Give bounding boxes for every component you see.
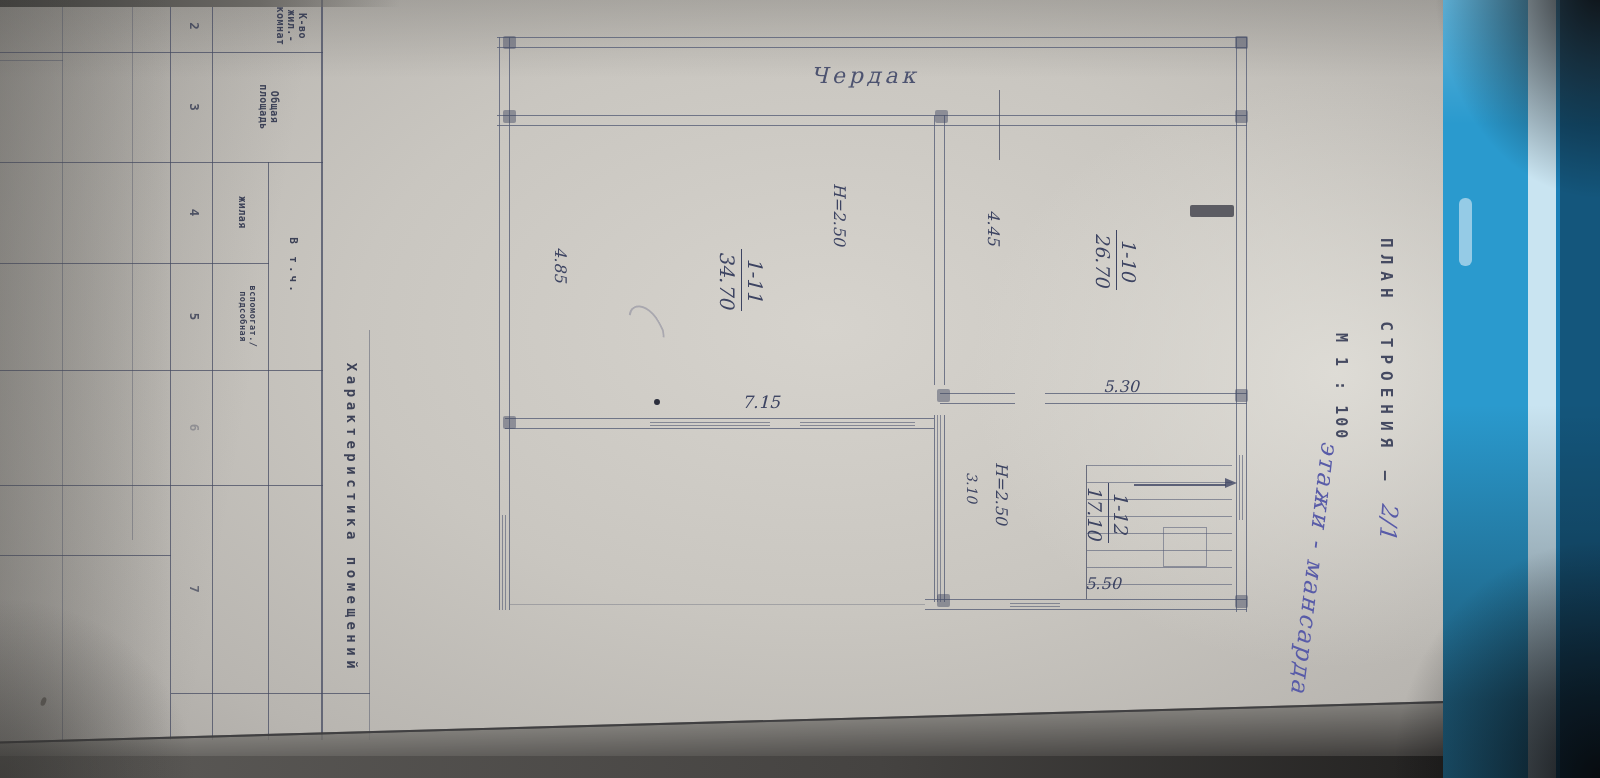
wall-junction-mark — [937, 594, 950, 607]
dimension-4-85: 4.85 — [551, 247, 570, 283]
wall-junction-mark — [503, 36, 516, 49]
table-col-header-total-area: Общая площадь — [258, 52, 280, 162]
wall-junction-mark — [937, 389, 950, 402]
table-title: Характеристика помещений — [344, 318, 360, 718]
wall-outer-right-upper-a — [1060, 599, 1247, 610]
wall-room11-right-b — [770, 418, 800, 429]
table-column-number: 3 — [187, 52, 202, 162]
window-symbol-right-upper — [1010, 599, 1060, 610]
staircase-landing-rect — [1163, 527, 1207, 567]
window-symbol-top — [1236, 455, 1247, 520]
pencil-dash-mark — [1190, 205, 1234, 217]
table-grid-line — [268, 162, 269, 740]
room-label-1-11: 1-11 34.70 — [715, 228, 767, 332]
table-column-number: 6 — [187, 370, 202, 485]
window-symbol-bottom — [499, 515, 510, 610]
room-number: 1-12 — [1108, 483, 1132, 544]
staircase-up-arrow-icon — [1225, 478, 1237, 488]
photo-of-floor-plan-document: ПЛАН СТРОЕНИЯ — 2/1 М 1 : 100 этажи - ма… — [0, 0, 1600, 778]
wall-outer-bottom-a — [499, 37, 510, 515]
right-edge-shadow — [1560, 0, 1600, 778]
wall-junction-mark — [1235, 36, 1248, 49]
room-number: 1-11 — [741, 249, 767, 312]
wall-junction-mark — [935, 110, 948, 123]
attic-label: Чердак — [790, 57, 940, 93]
bottom-left-vignette — [0, 470, 240, 778]
pencil-squiggle-mark — [622, 299, 669, 353]
wall-junction-mark — [1235, 595, 1248, 608]
wall-room10-room12-b — [940, 393, 1015, 404]
staircase-direction-line — [1134, 484, 1226, 486]
attic-partition-tick — [999, 90, 1000, 160]
wall-junction-mark — [1235, 389, 1248, 402]
table-column-number: 2 — [187, 0, 202, 52]
wall-room11-right-c — [505, 418, 650, 429]
wall-veranda-right-faint — [510, 604, 925, 605]
wall-junction-mark — [503, 110, 516, 123]
wall-outer-left — [497, 37, 1247, 48]
table-col-header-auxiliary: вспомогат./ подсобная — [238, 263, 258, 370]
wall-attic-separator — [497, 115, 1247, 126]
table-col-header-living: жилая — [237, 162, 248, 263]
room-number: 1-10 — [1116, 230, 1140, 291]
room-label-1-10: 1-10 26.70 — [1092, 212, 1140, 308]
room-label-1-12: 1-12 17.10 — [1084, 465, 1132, 561]
dimension-5-50: 5.50 — [1074, 573, 1132, 593]
wall-junction-mark — [503, 416, 516, 429]
window-symbol-room11-b — [650, 418, 770, 429]
room-area: 17.10 — [1084, 465, 1108, 561]
room-area: 26.70 — [1092, 212, 1116, 308]
ceiling-height-room11: Н=2.50 — [830, 183, 849, 246]
wall-junction-mark — [1235, 110, 1248, 123]
table-grid-line — [369, 330, 370, 740]
pencil-dot-mark — [654, 399, 660, 405]
wall-mid-window-band — [934, 415, 945, 602]
table-col-header-rooms-count: К-во жил.- комнат — [275, 0, 308, 52]
dimension-7-15: 7.15 — [731, 391, 791, 413]
plan-scale: М 1 : 100 — [1332, 333, 1350, 441]
ceiling-height-room12: Н=2.50 — [992, 462, 1011, 525]
table-column-number: 5 — [187, 263, 202, 370]
dimension-5-30: 5.30 — [1092, 376, 1150, 396]
window-symbol-room11-a — [800, 418, 915, 429]
dimension-3-10: 3.10 — [964, 472, 980, 503]
table-group-header-including: В т.ч. — [287, 162, 300, 370]
room-area: 34.70 — [715, 228, 741, 332]
wall-mid-a — [934, 115, 945, 385]
table-column-number: 4 — [187, 162, 202, 263]
dimension-4-45: 4.45 — [984, 210, 1003, 246]
wall-room11-right-a — [915, 418, 934, 429]
